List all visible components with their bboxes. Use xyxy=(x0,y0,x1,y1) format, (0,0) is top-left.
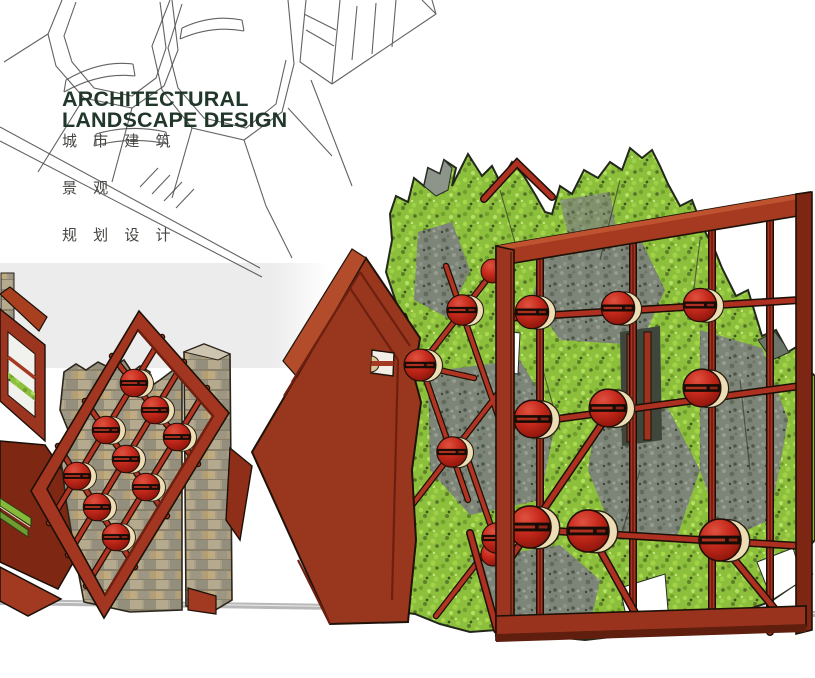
subtitle-cn-line-2: 景 观 xyxy=(62,180,114,197)
scene-canvas: ARCHITECTURAL LANDSCAPE DESIGN 城 市 建 筑 景… xyxy=(0,0,815,678)
design-poster: ARCHITECTURAL LANDSCAPE DESIGN 城 市 建 筑 景… xyxy=(0,0,815,678)
title-line-2: LANDSCAPE DESIGN xyxy=(62,108,287,132)
subtitle-cn-line-1: 城 市 建 筑 xyxy=(62,133,177,150)
subtitle-cn-line-3: 规 划 设 计 xyxy=(62,227,177,244)
